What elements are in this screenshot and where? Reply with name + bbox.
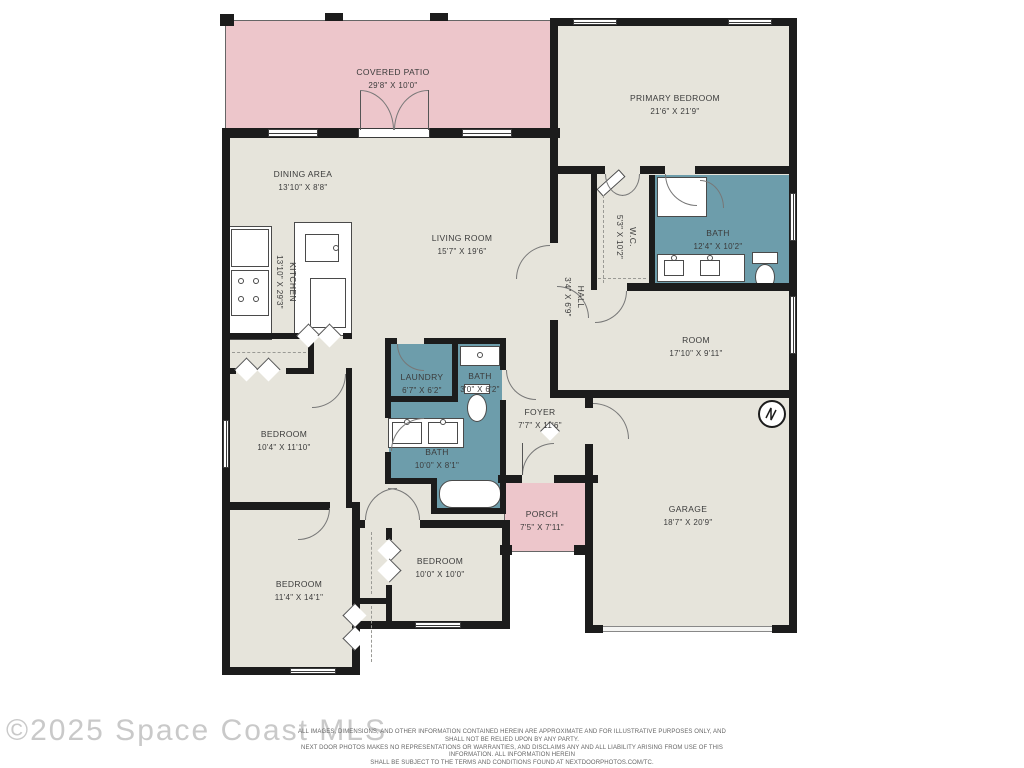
room-dims: 17'10" X 9'11" (669, 347, 722, 360)
disclaimer-text: ALL IMAGES, DIMENSIONS, AND OTHER INFORM… (288, 729, 736, 768)
wall (585, 444, 593, 633)
window (290, 668, 336, 674)
room-dims: 13'10" X 8'8" (274, 181, 333, 194)
window (462, 129, 512, 137)
wall (386, 585, 392, 623)
room-dims: 3'0" X 6'2" (460, 383, 500, 396)
wall (420, 520, 510, 528)
room-dims: 6'7" X 6'2" (401, 384, 444, 397)
room-dims: 10'0" X 10'0" (415, 568, 464, 581)
wall (222, 128, 230, 675)
wall (550, 18, 558, 128)
faucet-icon (707, 255, 713, 261)
stove-icon (231, 270, 269, 316)
window (573, 19, 617, 25)
garage-door (603, 626, 772, 632)
wall (640, 166, 665, 174)
room-dims: 18'7" X 20'9" (663, 516, 712, 529)
refrigerator-icon (231, 229, 269, 267)
room-label-primary-bedroom: PRIMARY BEDROOM 21'6" X 21'9" (630, 92, 720, 118)
patio-post (220, 14, 234, 26)
wall (452, 344, 458, 402)
room-name: BATH (693, 227, 742, 241)
room-name: PRIMARY BEDROOM (630, 92, 720, 106)
room-dims: 3'4" X 6'9" (561, 277, 574, 317)
room-name: BEDROOM (257, 428, 310, 442)
window (790, 296, 796, 354)
window (790, 193, 796, 241)
bathtub-icon (439, 480, 501, 508)
burner-icon (238, 296, 244, 302)
room-label-dining-area: DINING AREA 13'10" X 8'8" (274, 168, 333, 194)
wall (500, 338, 506, 370)
room-name: HALL (574, 277, 588, 317)
closet-rod-line (371, 606, 372, 662)
toilet-icon (467, 394, 487, 422)
patio-door-leaf (428, 90, 429, 130)
wall (649, 175, 655, 283)
wall (554, 475, 598, 483)
wall (550, 390, 797, 398)
room-dims: 5'3" X 10'2" (613, 215, 626, 259)
disclaimer-line: NEXT DOOR PHOTOS MAKES NO REPRESENTATION… (288, 745, 736, 761)
faucet-icon (477, 352, 483, 358)
wall (627, 283, 797, 291)
room-name: FOYER (518, 406, 562, 420)
window (223, 420, 229, 468)
room-dims: 15'7" X 19'6" (432, 245, 493, 258)
room-label-kitchen: KITCHEN 13'10" X 29'3" (273, 255, 299, 309)
room-name: BATH (415, 446, 459, 460)
room-name: ROOM (669, 334, 722, 348)
room-name: LAUNDRY (401, 371, 444, 385)
room-label-bedroom-left: BEDROOM 10'4" X 11'10" (257, 428, 310, 454)
wall (498, 475, 522, 483)
sink-icon (428, 422, 458, 444)
room-dims: 11'4" X 14'1" (275, 591, 324, 604)
wall (500, 400, 506, 514)
room-label-wc: W.C. 5'3" X 10'2" (613, 215, 639, 259)
room-dims: 7'5" X 7'11" (520, 521, 564, 534)
window (415, 622, 461, 628)
door-leaf (522, 443, 523, 475)
burner-icon (238, 278, 244, 284)
room-label-bedroom-bottom-middle: BEDROOM 10'0" X 10'0" (415, 555, 464, 581)
room-label-small-bath: BATH 3'0" X 6'2" (460, 370, 500, 396)
room-label-garage: GARAGE 18'7" X 20'9" (663, 503, 712, 529)
wall (550, 128, 558, 243)
room-name: PORCH (520, 508, 564, 522)
room-label-porch: PORCH 7'5" X 7'11" (520, 508, 564, 534)
wall (695, 166, 797, 174)
wall (352, 598, 392, 604)
closet-shelf-line (603, 195, 604, 283)
patio-post (430, 13, 448, 21)
room-dims: 12'4" X 10'2" (693, 240, 742, 253)
room-label-living-room: LIVING ROOM 15'7" X 19'6" (432, 232, 493, 258)
window (268, 129, 318, 137)
room-name: W.C. (626, 215, 640, 259)
sink-icon (664, 260, 684, 276)
room-dims: 13'10" X 29'3" (273, 255, 286, 309)
wall (385, 478, 437, 484)
wall (557, 166, 605, 174)
faucet-icon (440, 419, 446, 425)
wall (424, 338, 506, 344)
closet-rod-line (232, 352, 306, 353)
room-dims: 10'4" X 11'10" (257, 441, 310, 454)
closet-rod-line (371, 532, 372, 594)
disclaimer-line: ALL IMAGES, DIMENSIONS, AND OTHER INFORM… (288, 729, 736, 745)
room-name: BEDROOM (275, 578, 324, 592)
wall (343, 333, 352, 339)
room-name: BEDROOM (415, 555, 464, 569)
floor-plan-canvas: COVERED PATIO 29'8" X 10'0" PRIMARY BEDR… (0, 0, 1024, 768)
room-name: DINING AREA (274, 168, 333, 182)
burner-icon (253, 278, 259, 284)
wall (550, 320, 558, 398)
wall (352, 520, 365, 528)
patio-post (325, 13, 343, 21)
room-label-hall: HALL 3'4" X 6'9" (561, 277, 587, 317)
wall (222, 333, 300, 339)
faucet-icon (671, 255, 677, 261)
room-name: BATH (460, 370, 500, 384)
room-name: KITCHEN (286, 255, 300, 309)
toilet-icon (752, 252, 778, 264)
wall (591, 166, 597, 290)
room-name: COVERED PATIO (356, 66, 429, 80)
room-dims: 7'7" X 11'6" (518, 419, 562, 432)
wall (585, 625, 603, 633)
room-dims: 29'8" X 10'0" (356, 79, 429, 92)
room-label-laundry: LAUNDRY 6'7" X 6'2" (401, 371, 444, 397)
faucet-icon (333, 245, 339, 251)
wall (346, 368, 352, 508)
wall (431, 508, 506, 514)
water-heater-icon (758, 400, 786, 428)
room-dims: 21'6" X 21'9" (630, 105, 720, 118)
closet-shelf-line (598, 278, 646, 279)
room-label-covered-patio: COVERED PATIO 29'8" X 10'0" (356, 66, 429, 92)
wall (385, 338, 391, 418)
room-name: LIVING ROOM (432, 232, 493, 246)
burner-icon (253, 296, 259, 302)
wall (502, 528, 510, 627)
room-name: GARAGE (663, 503, 712, 517)
room-label-foyer: FOYER 7'7" X 11'6" (518, 406, 562, 432)
room-label-bedroom-bottom-left: BEDROOM 11'4" X 14'1" (275, 578, 324, 604)
room-label-room: ROOM 17'10" X 9'11" (669, 334, 722, 360)
wall (286, 368, 312, 374)
island-cabinet (310, 278, 346, 328)
sink-icon (700, 260, 720, 276)
room-label-main-bath: BATH 10'0" X 8'1" (415, 446, 459, 472)
room-label-primary-bath: BATH 12'4" X 10'2" (693, 227, 742, 253)
window (728, 19, 772, 25)
disclaimer-line: SHALL BE SUBJECT TO THE TERMS AND CONDIT… (288, 760, 736, 768)
room-dims: 10'0" X 8'1" (415, 459, 459, 472)
